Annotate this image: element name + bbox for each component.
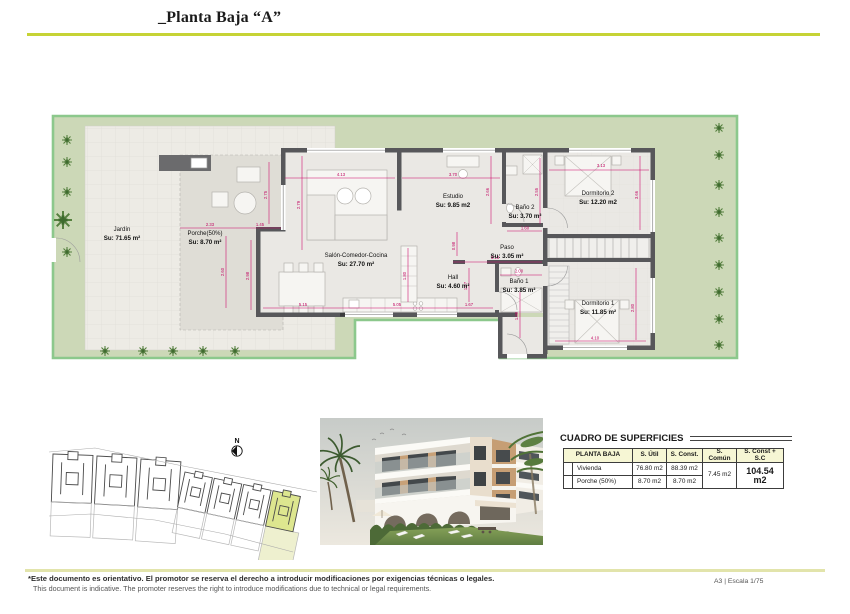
dimension-label: 2.75 <box>263 190 268 199</box>
svg-text:Su: 8.70 m²: Su: 8.70 m² <box>188 239 221 246</box>
dimension-label: 0.98 <box>451 241 456 250</box>
spacer-cell <box>564 463 573 476</box>
svg-text:N: N <box>234 438 239 445</box>
dimension-label: 2.60 <box>220 267 225 276</box>
col-header-comun: S. Común <box>703 449 737 463</box>
building-photo <box>320 418 543 545</box>
dimension-label: 2.33 <box>206 222 215 227</box>
dimension-label: 2.00 <box>515 269 524 274</box>
util-value: 76.80 m2 <box>633 463 667 476</box>
dimension-label: 1.67 <box>465 302 474 307</box>
svg-text:Su: 27.70 m²: Su: 27.70 m² <box>338 261 374 268</box>
dimension-label: 3.13 <box>597 163 606 168</box>
scale-label: A3 | Escala 1/75 <box>714 578 763 585</box>
disclaimer-es: *Este documento es orientativo. El promo… <box>28 574 494 583</box>
col-header-zone: PLANTA BAJA <box>564 449 633 463</box>
spacer-cell <box>564 476 573 489</box>
staircase <box>549 238 649 258</box>
dimension-label: 2.98 <box>245 271 250 280</box>
surfaces-table: PLANTA BAJA S. Útil S. Const. S. Común S… <box>563 448 784 489</box>
row-label: Porche (50%) <box>573 476 633 489</box>
dimension-label: 1.80 <box>402 271 407 280</box>
total-value: 104.54 m2 <box>737 463 784 489</box>
header-accent-line <box>27 33 820 36</box>
surfaces-title: CUADRO DE SUPERFICIES <box>560 433 684 444</box>
site-keyplan: N <box>45 430 317 560</box>
keyplan-buildings-left <box>50 451 181 544</box>
svg-text:Estudio: Estudio <box>443 194 464 200</box>
svg-text:Jardín: Jardín <box>114 227 131 233</box>
floorplan-drawing: 4.13 3.70 3.13 2.79 2.75 2.66 3.66 2.55 … <box>45 100 740 365</box>
svg-text:Su: 3.70 m²: Su: 3.70 m² <box>508 213 541 220</box>
util-value: 8.70 m2 <box>633 476 667 489</box>
table-row: Vivienda 76.80 m2 88.39 m2 7.45 m2 104.5… <box>564 463 784 476</box>
svg-text:Porche(50%): Porche(50%) <box>187 231 222 237</box>
svg-text:Baño 1: Baño 1 <box>509 279 529 285</box>
dimension-label: 4.10 <box>591 336 600 341</box>
dimension-label: 4.13 <box>337 172 346 177</box>
disclaimer-en: This document is indicative. The promote… <box>33 584 431 593</box>
page-title: _Planta Baja “A” <box>158 9 281 27</box>
dimension-label: 5.15 <box>299 302 308 307</box>
svg-text:Paso: Paso <box>500 245 514 251</box>
row-label: Vivienda <box>573 463 633 476</box>
svg-text:Su: 4.60 m²: Su: 4.60 m² <box>436 283 469 290</box>
col-header-util: S. Útil <box>633 449 667 463</box>
col-header-const: S. Const. <box>667 449 703 463</box>
svg-text:Su: 11.85 m²: Su: 11.85 m² <box>580 309 616 316</box>
room-label-porche: Porche(50%) Su: 8.70 m² <box>187 231 222 246</box>
room-label-dorm1: Dormitorio 1 Su: 11.85 m² <box>580 301 616 316</box>
surfaces-panel: CUADRO DE SUPERFICIES PLANTA BAJA S. Úti… <box>560 433 792 489</box>
dimension-label: 2.66 <box>485 187 490 196</box>
title-rule <box>690 436 792 441</box>
svg-text:Su: 3.05 m²: Su: 3.05 m² <box>490 253 523 260</box>
svg-text:Baño 2: Baño 2 <box>515 205 535 211</box>
svg-text:Su: 12.20 m2: Su: 12.20 m2 <box>579 199 617 206</box>
svg-text:Dormitorio 2: Dormitorio 2 <box>582 191 615 197</box>
const-value: 88.39 m2 <box>667 463 703 476</box>
apartment-building <box>356 437 543 530</box>
footer-accent-line <box>25 569 825 572</box>
room-label-dorm2: Dormitorio 2 Su: 12.20 m2 <box>579 191 617 206</box>
north-arrow-icon: N <box>232 438 242 456</box>
svg-text:Hall: Hall <box>448 275 458 281</box>
svg-text:Su: 3.85 m²: Su: 3.85 m² <box>502 287 535 294</box>
dimension-label: 3.70 <box>449 172 458 177</box>
svg-text:Su: 9.85 m2: Su: 9.85 m2 <box>436 202 471 209</box>
const-value: 8.70 m2 <box>667 476 703 489</box>
dimension-label: 5.05 <box>393 302 402 307</box>
svg-text:Dormitorio 1: Dormitorio 1 <box>582 301 615 307</box>
dimension-label: 3.66 <box>634 190 639 199</box>
comun-value: 7.45 m2 <box>703 463 737 489</box>
dimension-label: 1.88 <box>514 311 519 320</box>
dimension-label: 2.55 <box>534 187 539 196</box>
dimension-label: 1.45 <box>256 222 265 227</box>
dimension-label: 1.60 <box>521 226 530 231</box>
col-header-total: S. Const + S.C <box>737 449 784 463</box>
dimension-label: 2.79 <box>296 200 301 209</box>
document-page: _Planta Baja “A” <box>0 0 850 614</box>
svg-text:Su: 71.65 m²: Su: 71.65 m² <box>104 235 140 242</box>
svg-text:Salón-Comedor-Cocina: Salón-Comedor-Cocina <box>325 253 388 259</box>
dimension-label: 2.80 <box>630 303 635 312</box>
keyplan-buildings-right <box>169 469 307 560</box>
